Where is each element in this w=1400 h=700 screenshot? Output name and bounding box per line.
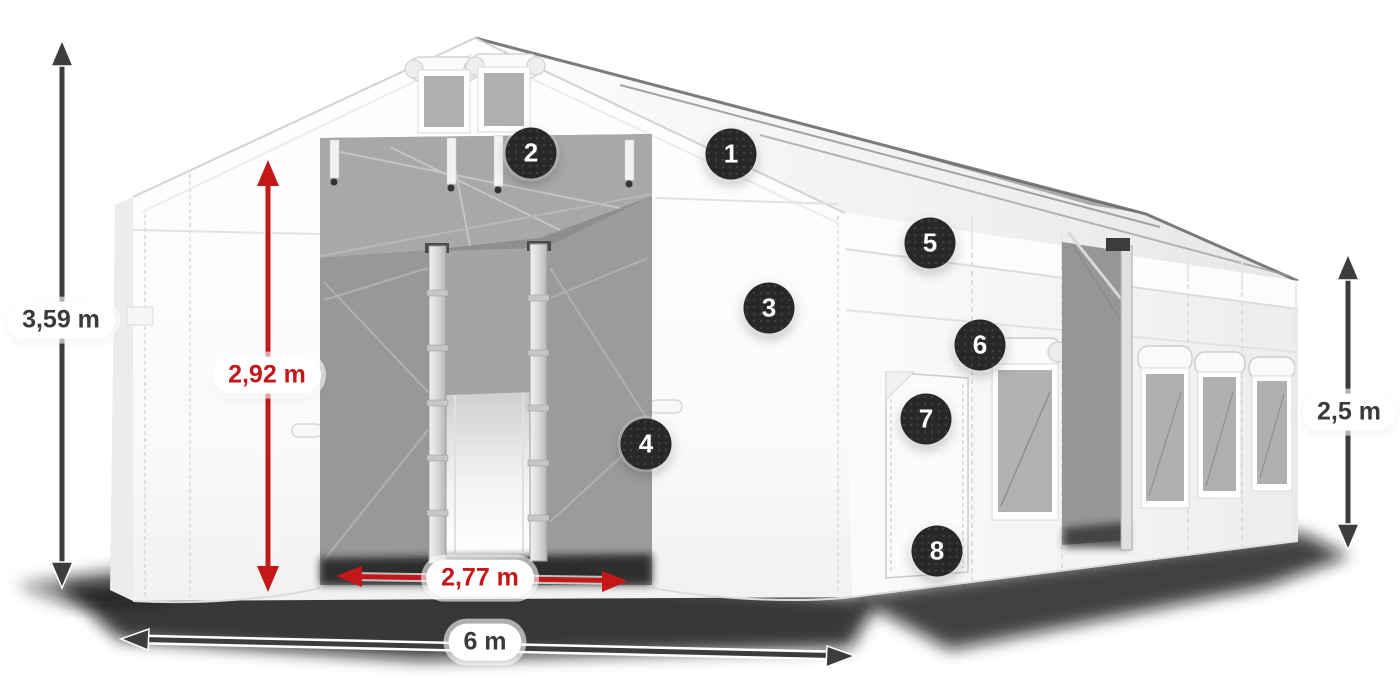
- side-open-section: [1062, 232, 1132, 550]
- tent-illustration: [0, 0, 1400, 700]
- door-height-label: 2,92 m: [213, 357, 321, 394]
- side-wall-height-label: 2,5 m: [1302, 394, 1396, 431]
- callout-badge-3[interactable]: 3: [744, 283, 795, 334]
- overall-height-label: 3,59 m: [7, 302, 115, 339]
- front-door-left-handle: [292, 424, 322, 437]
- side-window-2: [1138, 346, 1192, 508]
- side-window-3: [1195, 352, 1245, 498]
- callout-badge-5[interactable]: 5: [905, 218, 956, 269]
- front-door-opening: [320, 134, 652, 585]
- door-width-label: 2,77 m: [426, 560, 534, 597]
- callout-badge-8[interactable]: 8: [912, 526, 963, 577]
- callout-badge-1[interactable]: 1: [706, 129, 757, 180]
- callout-badge-6[interactable]: 6: [955, 320, 1006, 371]
- side-window-1: [984, 338, 1068, 520]
- callout-badge-2[interactable]: 2: [506, 128, 557, 179]
- side-window-4: [1249, 357, 1295, 491]
- callout-badge-7[interactable]: 7: [901, 394, 952, 445]
- overall-width-label: 6 m: [448, 624, 521, 661]
- callout-badge-4[interactable]: 4: [621, 419, 672, 470]
- tent-dimension-diagram: 3,59 m 2,92 m 2,77 m 6 m 2,5 m 1 2 3 4 5…: [0, 0, 1400, 700]
- gable-vent-left: [418, 70, 470, 133]
- gable-vent-right: [478, 67, 530, 132]
- front-door-right-handle: [650, 400, 682, 413]
